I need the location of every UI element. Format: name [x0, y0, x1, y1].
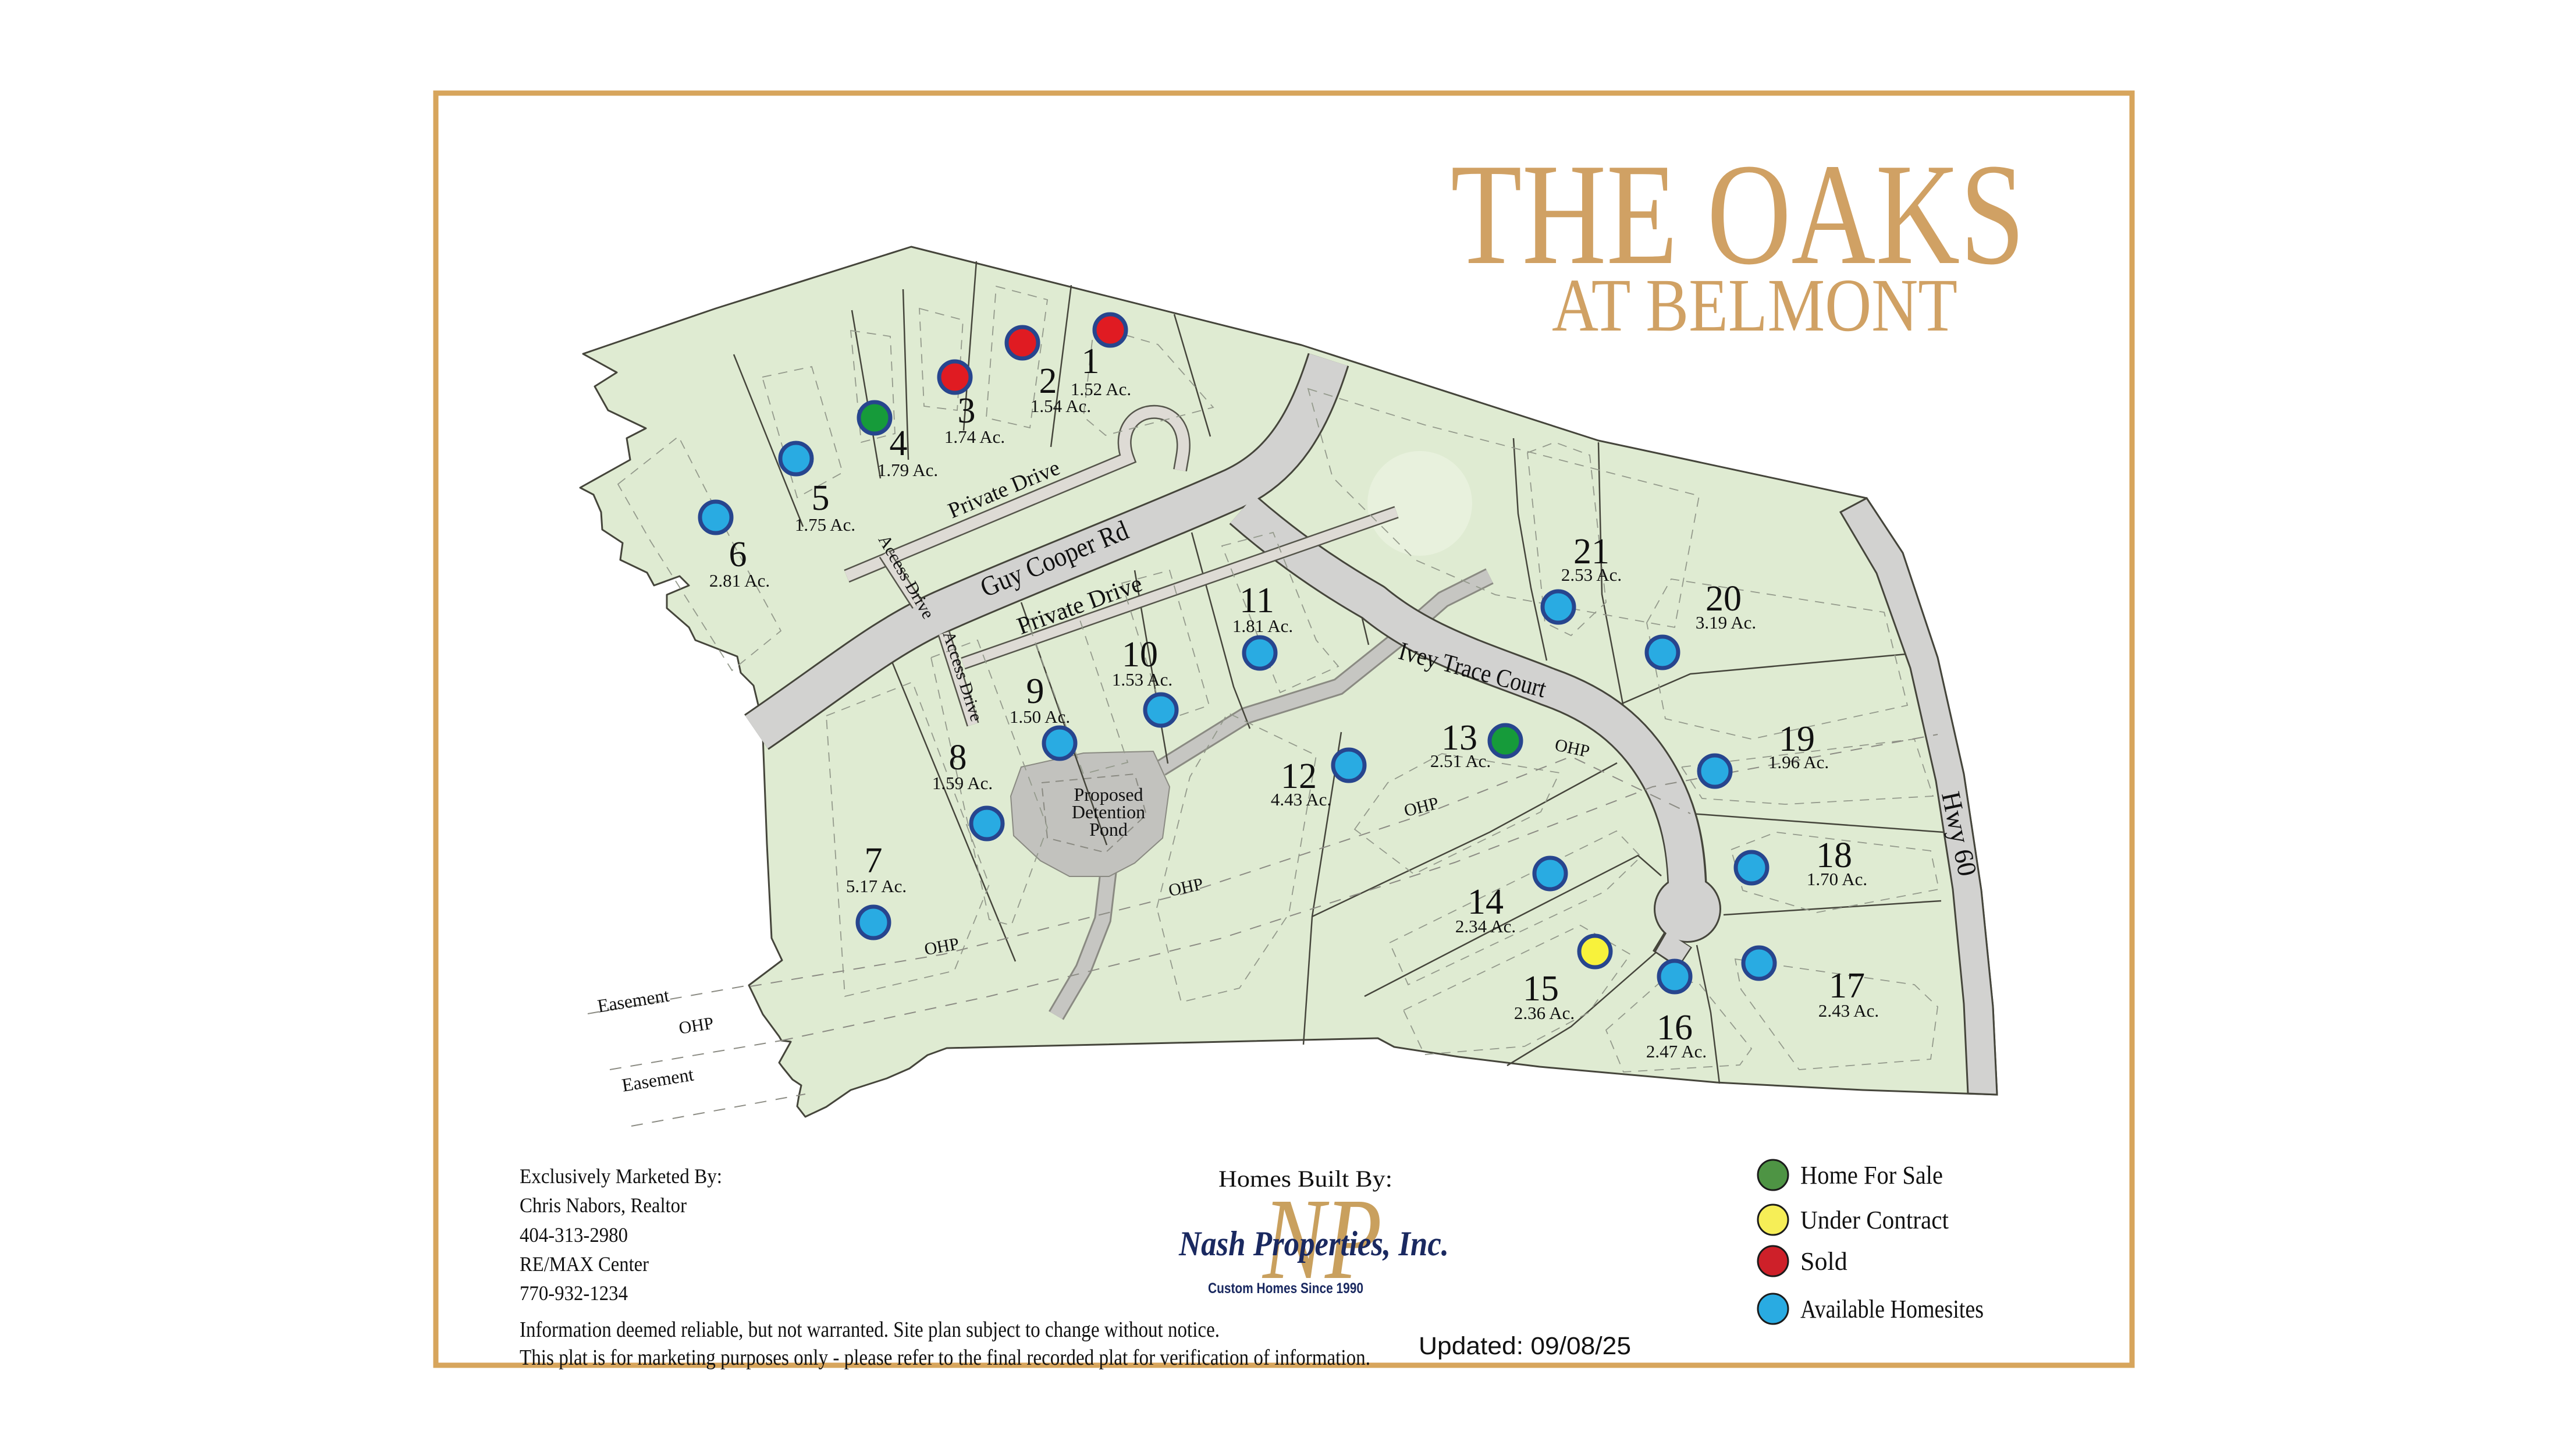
svg-text:Pond: Pond	[1089, 819, 1128, 840]
svg-text:Custom Homes Since 1990: Custom Homes Since 1990	[1208, 1280, 1363, 1297]
svg-text:3: 3	[958, 391, 976, 431]
svg-text:1.50 Ac.: 1.50 Ac.	[1010, 706, 1070, 727]
svg-text:11: 11	[1239, 581, 1274, 620]
svg-text:8: 8	[949, 738, 967, 777]
svg-text:Updated: 09/08/25: Updated: 09/08/25	[1419, 1332, 1631, 1360]
svg-text:4.43 Ac.: 4.43 Ac.	[1271, 789, 1331, 810]
svg-text:AT BELMONT: AT BELMONT	[1552, 264, 1957, 347]
svg-text:7: 7	[865, 841, 883, 881]
svg-text:Under Contract: Under Contract	[1800, 1206, 1949, 1234]
svg-text:5: 5	[812, 478, 830, 518]
svg-text:1.75 Ac.: 1.75 Ac.	[795, 514, 855, 535]
svg-text:9: 9	[1026, 672, 1044, 711]
svg-text:Information deemed reliable, b: Information deemed reliable, but not war…	[520, 1318, 1220, 1342]
svg-text:2.43 Ac.: 2.43 Ac.	[1818, 1000, 1879, 1021]
svg-text:4: 4	[890, 424, 908, 463]
svg-text:2.47 Ac.: 2.47 Ac.	[1646, 1041, 1707, 1061]
svg-text:1.74 Ac.: 1.74 Ac.	[944, 427, 1005, 447]
svg-text:1: 1	[1082, 342, 1100, 381]
svg-text:770-932-1234: 770-932-1234	[520, 1281, 628, 1305]
svg-text:10: 10	[1122, 635, 1158, 674]
svg-text:1.79 Ac.: 1.79 Ac.	[877, 460, 938, 480]
svg-text:5.17 Ac.: 5.17 Ac.	[846, 876, 907, 896]
svg-text:Exclusively Marketed By:: Exclusively Marketed By:	[520, 1164, 722, 1188]
svg-text:1.53 Ac.: 1.53 Ac.	[1112, 669, 1172, 690]
svg-text:3.19 Ac.: 3.19 Ac.	[1696, 612, 1756, 633]
svg-text:Available Homesites: Available Homesites	[1800, 1295, 1984, 1323]
svg-text:2.34 Ac.: 2.34 Ac.	[1455, 916, 1516, 936]
svg-text:1.96 Ac.: 1.96 Ac.	[1768, 752, 1829, 772]
svg-text:1.70 Ac.: 1.70 Ac.	[1807, 869, 1867, 889]
svg-text:1.54 Ac.: 1.54 Ac.	[1031, 396, 1091, 416]
svg-text:RE/MAX Center: RE/MAX Center	[520, 1252, 649, 1276]
svg-text:6: 6	[729, 535, 747, 574]
svg-text:2.36 Ac.: 2.36 Ac.	[1514, 1003, 1575, 1023]
svg-text:Nash Properties, Inc.: Nash Properties, Inc.	[1178, 1224, 1449, 1263]
svg-text:2.53 Ac.: 2.53 Ac.	[1561, 564, 1622, 585]
svg-text:2.51 Ac.: 2.51 Ac.	[1430, 751, 1491, 771]
svg-text:This plat is for marketing pur: This plat is for marketing purposes only…	[520, 1345, 1370, 1370]
svg-text:1.59 Ac.: 1.59 Ac.	[932, 773, 993, 793]
svg-text:Home For Sale: Home For Sale	[1800, 1161, 1943, 1190]
svg-text:17: 17	[1829, 966, 1865, 1006]
svg-text:404-313-2980: 404-313-2980	[520, 1223, 628, 1247]
svg-text:Chris Nabors, Realtor: Chris Nabors, Realtor	[520, 1194, 687, 1217]
svg-text:Sold: Sold	[1800, 1247, 1847, 1276]
svg-text:2.81 Ac.: 2.81 Ac.	[709, 570, 770, 591]
svg-text:1.81 Ac.: 1.81 Ac.	[1232, 616, 1293, 636]
svg-text:2: 2	[1039, 361, 1057, 401]
